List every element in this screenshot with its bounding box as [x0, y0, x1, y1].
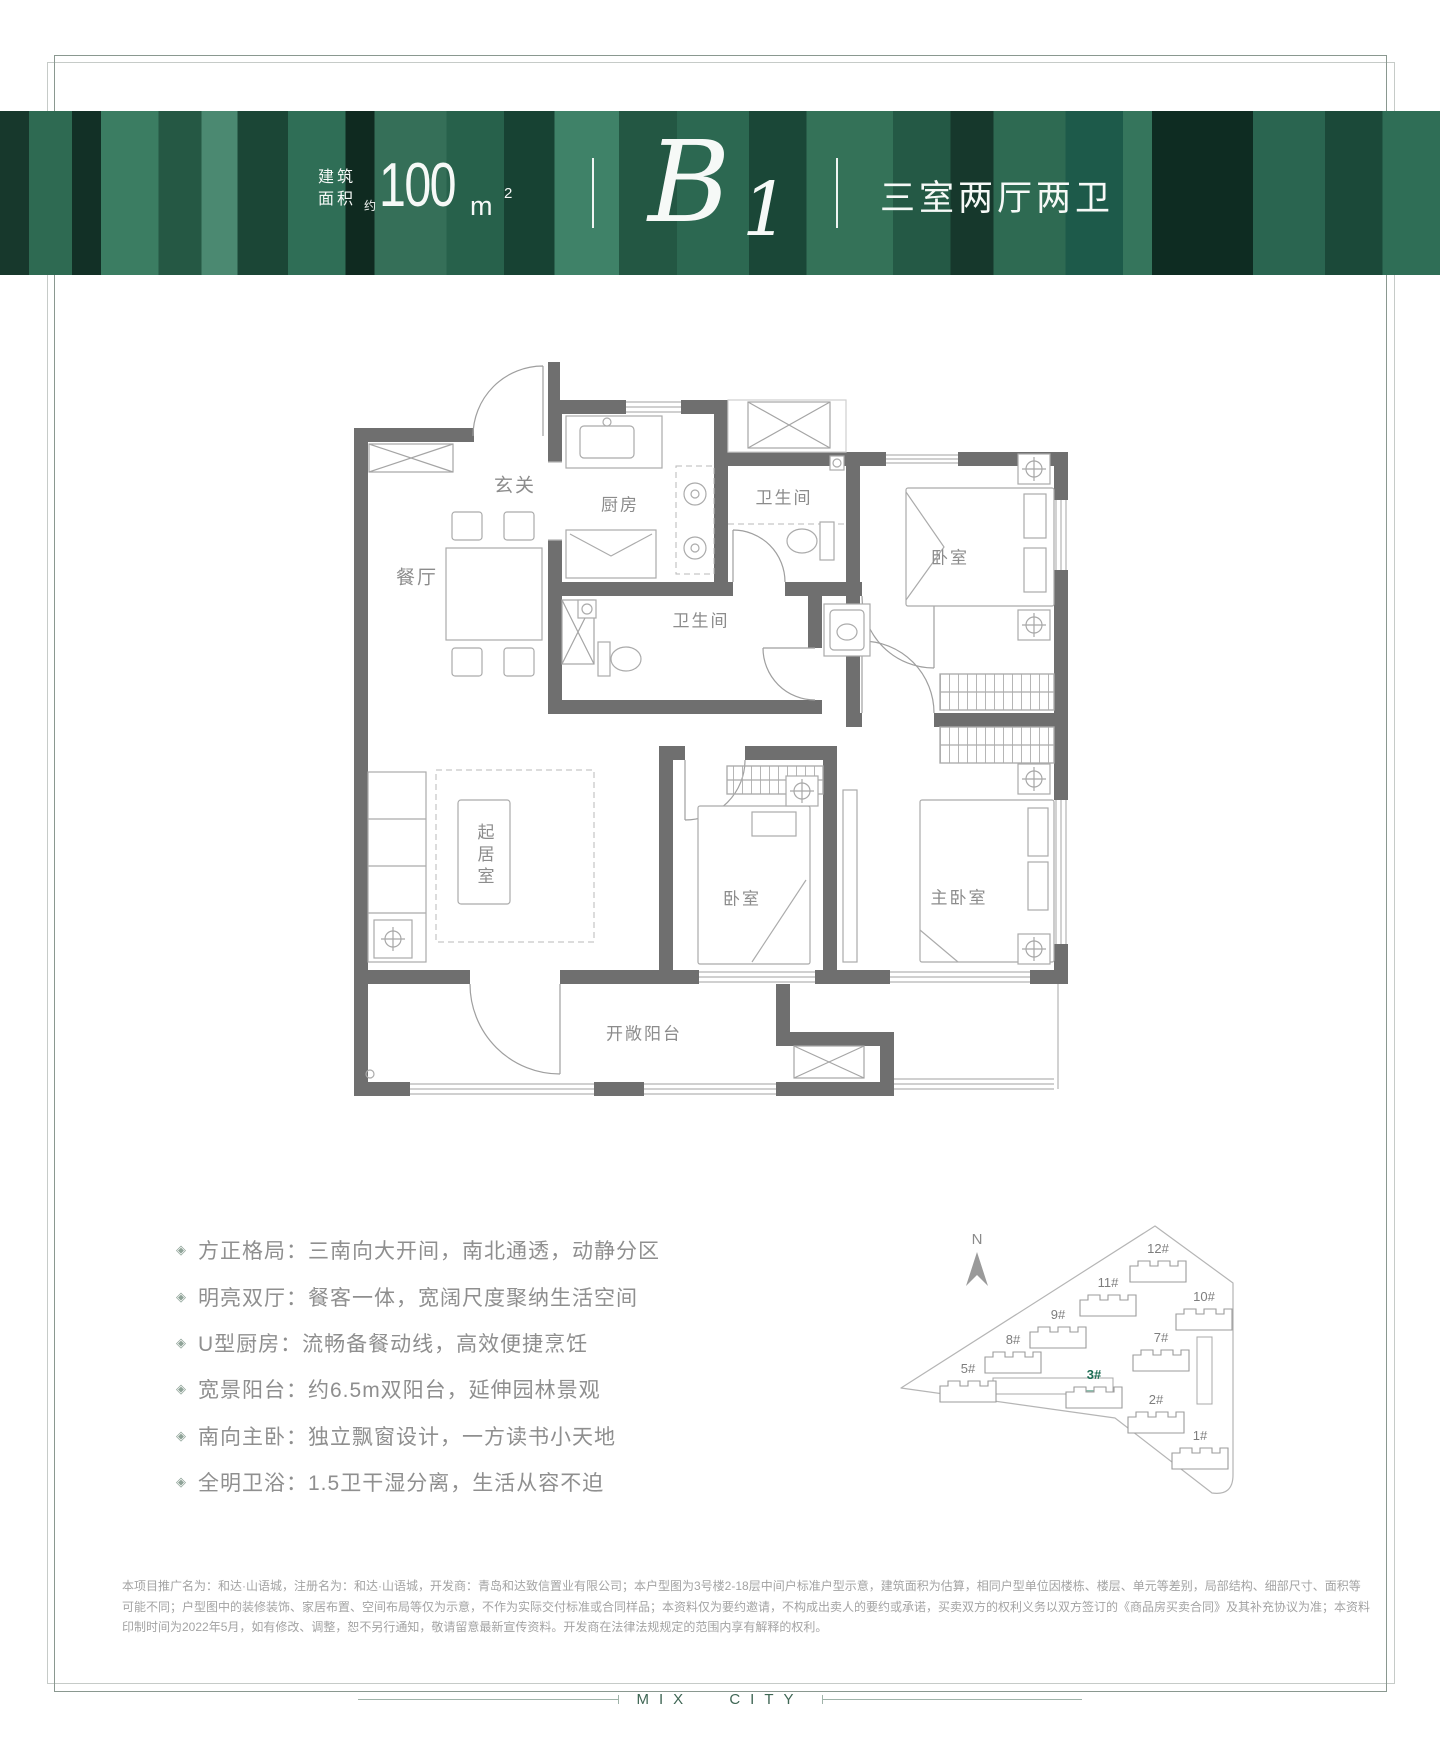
pillow — [1028, 862, 1048, 910]
doors — [470, 366, 934, 1074]
disclaimer-line: 本项目推广名为：和达·山语城，注册名为：和达·山语城，开发商：青岛和达致信置业有… — [122, 1576, 1337, 1597]
footer-rule-tick — [618, 1695, 619, 1704]
feature-list: ◈ 方正格局：三南向大开间，南北通透，动静分区 ◈ 明亮双厅：餐客一体，宽阔尺度… — [176, 1227, 660, 1505]
faucet-icon — [603, 418, 611, 426]
footer-brand: MIX CITY — [358, 1691, 1082, 1708]
disclaimer-text: 本项目推广名为：和达·山语城，注册名为：和达·山语城，开发商：青岛和达致信置业有… — [122, 1576, 1337, 1638]
toilet-tank — [598, 642, 610, 676]
svg-text:10#: 10# — [1193, 1289, 1215, 1304]
room-label-bath-1: 卫生间 — [756, 484, 813, 509]
svg-text:3#: 3# — [1087, 1367, 1102, 1382]
pillow — [1028, 808, 1048, 856]
site-building-1: 1# — [1172, 1428, 1228, 1469]
diamond-bullet-icon: ◈ — [176, 1474, 186, 1490]
room-label-dining: 餐厅 — [396, 563, 438, 590]
room-label-foyer: 玄关 — [494, 471, 536, 498]
room-label-kitchen: 厨房 — [601, 491, 639, 516]
wardrobe — [843, 790, 857, 962]
disclaimer-line: 可能不同；户型图中的装修装饰、家居布置、空间布局等仅为示意，不作为实际交付标准或… — [122, 1597, 1337, 1618]
site-plan-map: N 12# 11# 10# 9# 8# 7# 5# — [880, 1180, 1310, 1510]
site-building-12: 12# — [1130, 1241, 1186, 1282]
dining-table — [446, 548, 542, 640]
diamond-bullet-icon: ◈ — [176, 1428, 186, 1444]
pillow — [752, 812, 796, 836]
svg-text:N: N — [972, 1231, 983, 1248]
diamond-bullet-icon: ◈ — [176, 1242, 186, 1258]
svg-text:12#: 12# — [1147, 1241, 1169, 1256]
room-label-balcony: 开敞阳台 — [606, 1020, 682, 1045]
floorplan-brochure-page: { "banner": { "area_label_line1": "建筑", … — [0, 0, 1440, 1738]
svg-text:1#: 1# — [1193, 1428, 1208, 1443]
diamond-bullet-icon: ◈ — [176, 1381, 186, 1397]
site-building-2: 2# — [1128, 1392, 1184, 1433]
washbasin-icon — [837, 624, 857, 640]
diamond-bullet-icon: ◈ — [176, 1335, 186, 1351]
feature-item: ◈ 全明卫浴：1.5卫干湿分离，生活从容不迫 — [176, 1459, 660, 1505]
north-arrow: N — [966, 1231, 988, 1286]
feature-item: ◈ 宽景阳台：约6.5m双阳台，延伸园林景观 — [176, 1366, 660, 1412]
site-building-11: 11# — [1080, 1275, 1136, 1316]
kitchen-cabinet — [566, 530, 656, 578]
feature-item: ◈ U型厨房：流畅备餐动线，高效便捷烹饪 — [176, 1320, 660, 1366]
feature-item: ◈ 方正格局：三南向大开间，南北通透，动静分区 — [176, 1227, 660, 1273]
svg-text:7#: 7# — [1154, 1330, 1169, 1345]
site-building-9: 9# — [1030, 1307, 1086, 1348]
room-label-bedroom-2: 卧室 — [723, 885, 761, 910]
room-label-master-bedroom: 主卧室 — [931, 884, 988, 909]
pillow — [1024, 548, 1046, 592]
kitchen-sink — [580, 426, 634, 458]
site-building-3-highlighted: 3# — [1066, 1367, 1122, 1408]
site-building-7: 7# — [1133, 1330, 1189, 1371]
room-label-living: 起居室 — [472, 823, 497, 889]
room-label-bath-2: 卫生间 — [673, 607, 730, 632]
svg-text:2#: 2# — [1149, 1392, 1164, 1407]
disclaimer-line: 印制时间为2022年5月，如有修改、调整，恕不另行通知，敬请留意最新宣传资料。开… — [122, 1617, 1337, 1638]
toilet-icon — [611, 647, 641, 671]
feature-item: ◈ 明亮双厅：餐客一体，宽阔尺度聚纳生活空间 — [176, 1273, 660, 1319]
brand-logo-text: MIX CITY — [637, 1691, 804, 1708]
footer-rule-left — [358, 1699, 618, 1700]
toilet-icon — [787, 529, 817, 553]
pillow — [1024, 494, 1046, 538]
dining-chair — [504, 648, 534, 676]
toilet-tank — [820, 522, 834, 560]
svg-text:11#: 11# — [1098, 1275, 1119, 1290]
feature-item: ◈ 南向主卧：独立飘窗设计，一方读书小天地 — [176, 1413, 660, 1459]
footer-rule-right — [823, 1699, 1083, 1700]
site-building-10: 10# — [1176, 1289, 1232, 1330]
dining-chair — [452, 648, 482, 676]
svg-text:8#: 8# — [1006, 1332, 1021, 1347]
diamond-bullet-icon: ◈ — [176, 1289, 186, 1305]
svg-text:9#: 9# — [1051, 1307, 1066, 1322]
room-label-bedroom-1: 卧室 — [931, 544, 969, 569]
dining-chair — [504, 512, 534, 540]
svg-text:5#: 5# — [961, 1361, 976, 1376]
dining-chair — [452, 512, 482, 540]
site-structure — [1197, 1337, 1212, 1404]
